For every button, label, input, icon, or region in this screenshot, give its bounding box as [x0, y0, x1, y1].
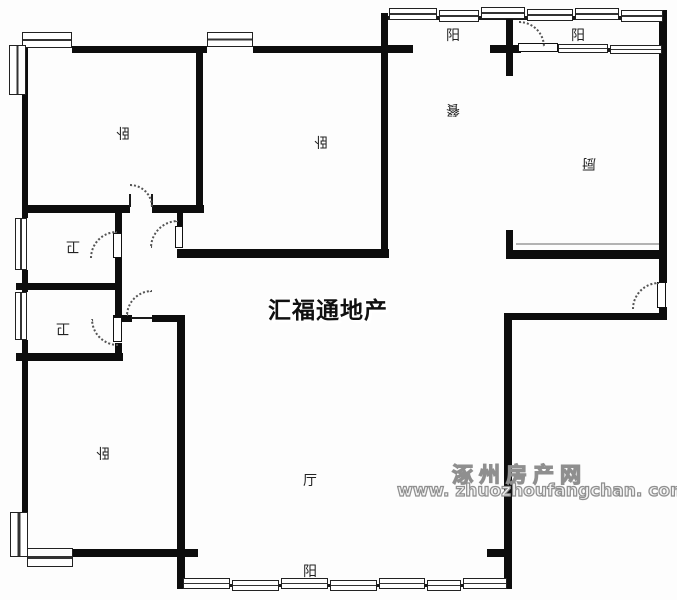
wall	[22, 270, 28, 292]
wall	[177, 249, 389, 258]
window	[439, 10, 479, 22]
wall	[253, 46, 388, 53]
wall	[504, 313, 512, 589]
wall	[506, 313, 666, 320]
wall	[72, 46, 207, 53]
wall	[16, 283, 122, 290]
door-arc	[90, 231, 117, 258]
wall	[16, 353, 123, 361]
window	[22, 32, 72, 48]
room-label-dining-room: 餐	[444, 99, 462, 117]
door-threshold	[131, 317, 152, 319]
room-label-balcony-top-right: 阳	[569, 28, 587, 46]
wall	[196, 47, 203, 213]
window	[207, 32, 253, 47]
window	[379, 578, 425, 589]
window	[575, 8, 619, 20]
door-arc	[150, 220, 178, 248]
room-label-balcony-top-left: 阳	[444, 28, 462, 46]
kitchen-counter-line	[516, 243, 662, 245]
wall	[22, 205, 130, 213]
room-label-living-room: 厅	[301, 473, 319, 491]
wall	[115, 257, 122, 317]
window	[330, 580, 377, 591]
window	[10, 512, 28, 557]
wall	[115, 212, 122, 233]
door-arc	[130, 184, 153, 207]
wall	[506, 230, 513, 258]
window	[15, 218, 27, 270]
wall	[177, 315, 185, 589]
window	[463, 578, 507, 589]
door-arc	[91, 319, 118, 346]
window	[527, 9, 573, 21]
room-label-kitchen: 厨	[580, 153, 598, 171]
window	[27, 548, 73, 567]
window	[621, 10, 663, 22]
room-label-bedroom-top-middle: 卧	[312, 131, 330, 149]
agency-watermark: 汇福通地产	[268, 291, 388, 325]
window	[389, 8, 437, 20]
door-arc	[519, 21, 545, 47]
window	[232, 580, 279, 591]
window	[183, 578, 230, 589]
room-label-bathroom-lower: 卫	[54, 318, 72, 336]
window	[427, 580, 461, 591]
door-arc	[632, 282, 659, 309]
room-label-bedroom-bottom-left: 卧	[94, 442, 112, 460]
window	[481, 7, 525, 19]
window	[610, 45, 662, 54]
wall	[659, 307, 667, 320]
wall	[506, 250, 663, 259]
door-arc	[126, 290, 152, 316]
room-label-bathroom-upper: 卫	[64, 236, 82, 254]
window	[15, 292, 27, 340]
wall	[381, 13, 388, 256]
wall	[22, 340, 28, 512]
floor-plan: 卧 卧 卧 卫 卫 厅 餐 厨 阳 阳 阳 汇福通地产 涿州房产网 www. z…	[0, 0, 677, 600]
room-label-bedroom-top-left: 卧	[114, 122, 132, 140]
window	[9, 45, 26, 95]
room-label-balcony-bottom: 阳	[301, 564, 319, 582]
site-url-watermark: www. zhuozhoufangchan. com	[397, 481, 677, 501]
wall	[506, 16, 513, 76]
